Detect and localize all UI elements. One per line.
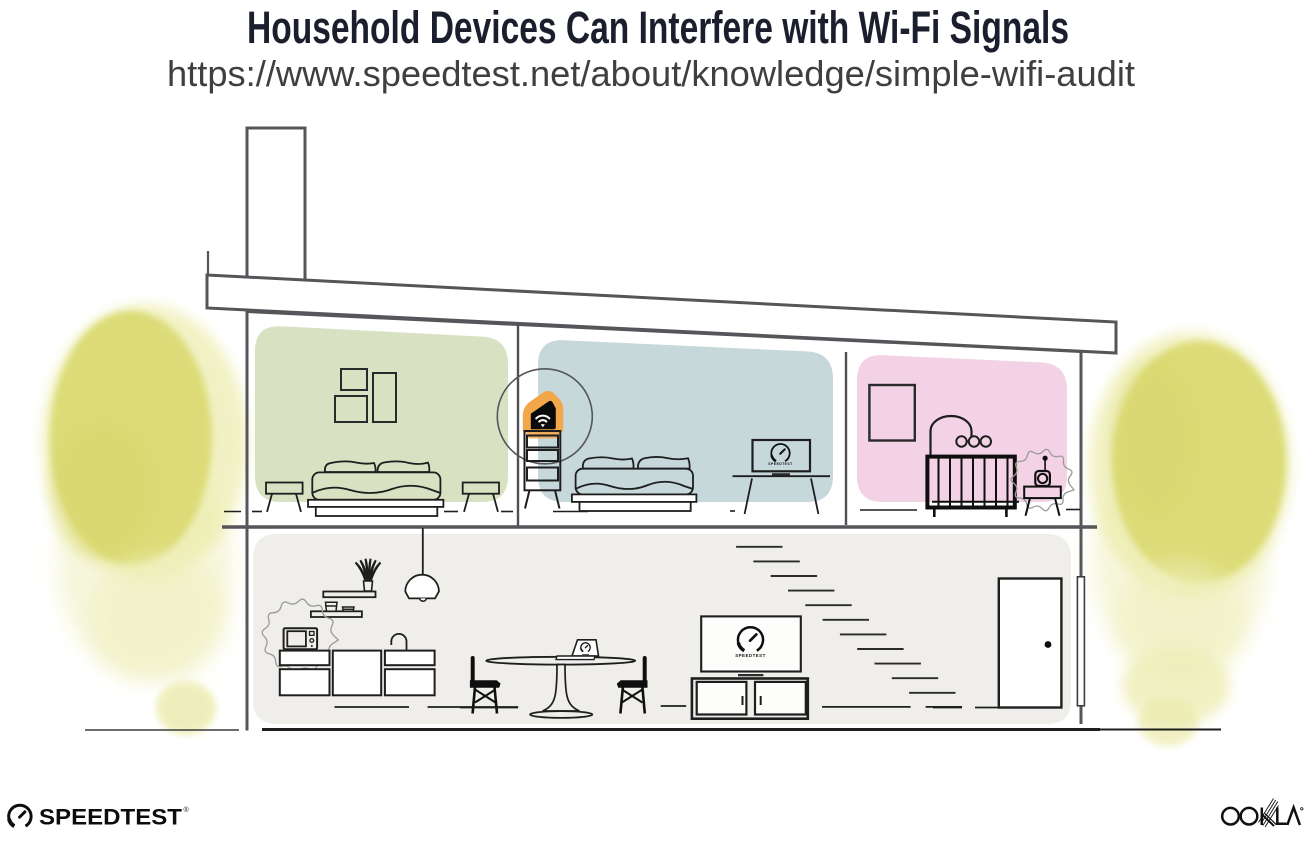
svg-text:https://www.speedtest.net/abou: https://www.speedtest.net/about/knowledg… <box>167 53 1135 94</box>
svg-text:®: ® <box>184 806 190 814</box>
svg-text:Household Devices Can Interfer: Household Devices Can Interfere with Wi-… <box>247 2 1069 53</box>
svg-text:SPEEDTEST: SPEEDTEST <box>735 653 766 658</box>
svg-text:SPEEDTEST: SPEEDTEST <box>768 462 793 466</box>
svg-text:SPEEDTEST: SPEEDTEST <box>39 805 182 830</box>
